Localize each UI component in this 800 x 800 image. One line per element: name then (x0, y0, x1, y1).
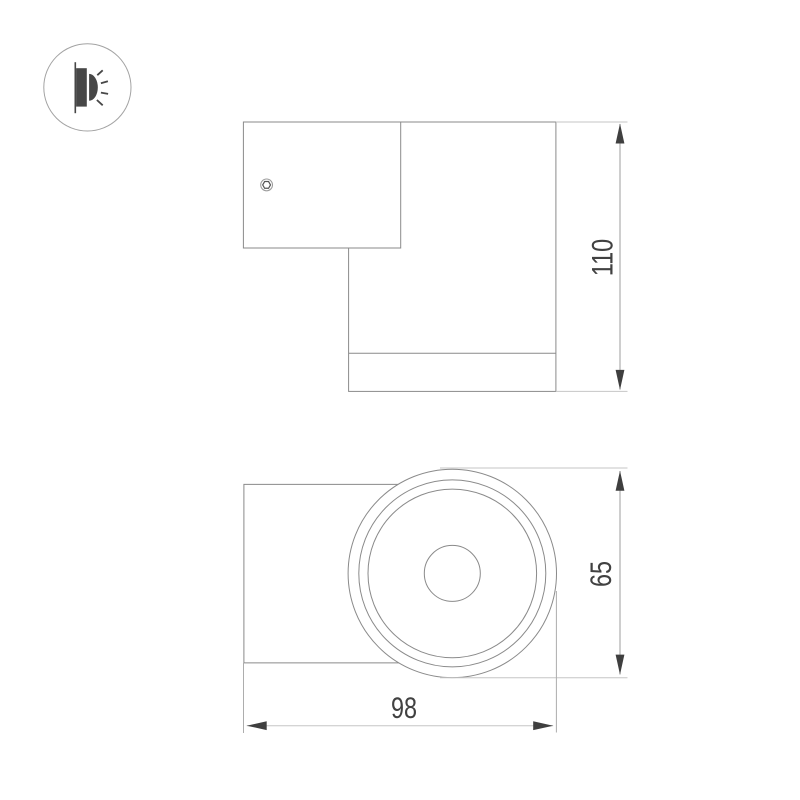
svg-text:98: 98 (391, 691, 417, 724)
svg-text:65: 65 (584, 561, 617, 587)
svg-text:110: 110 (586, 239, 619, 276)
